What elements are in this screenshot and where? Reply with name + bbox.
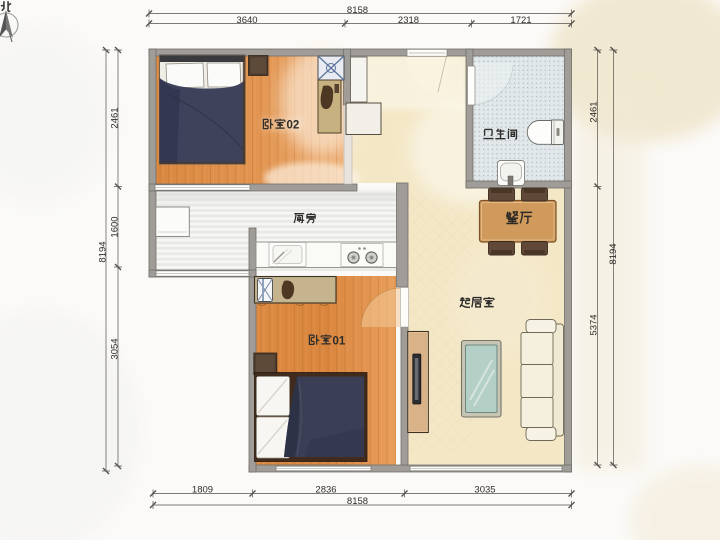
svg-text:8194: 8194	[608, 243, 619, 264]
svg-text:8158: 8158	[347, 5, 368, 16]
svg-text:3054: 3054	[110, 338, 121, 359]
svg-text:3640: 3640	[236, 15, 257, 26]
svg-text:8158: 8158	[347, 496, 368, 507]
svg-text:1600: 1600	[110, 216, 121, 237]
svg-text:2836: 2836	[315, 485, 336, 496]
svg-text:1721: 1721	[510, 15, 531, 26]
svg-text:02: 02	[287, 120, 300, 132]
svg-text:8194: 8194	[98, 241, 109, 262]
svg-text:01: 01	[333, 335, 346, 347]
svg-text:2461: 2461	[110, 107, 121, 128]
svg-text:2461: 2461	[589, 101, 600, 122]
svg-text:2318: 2318	[398, 15, 419, 26]
svg-text:1809: 1809	[192, 485, 213, 496]
svg-text:3035: 3035	[474, 485, 495, 496]
svg-text:5374: 5374	[589, 314, 600, 335]
